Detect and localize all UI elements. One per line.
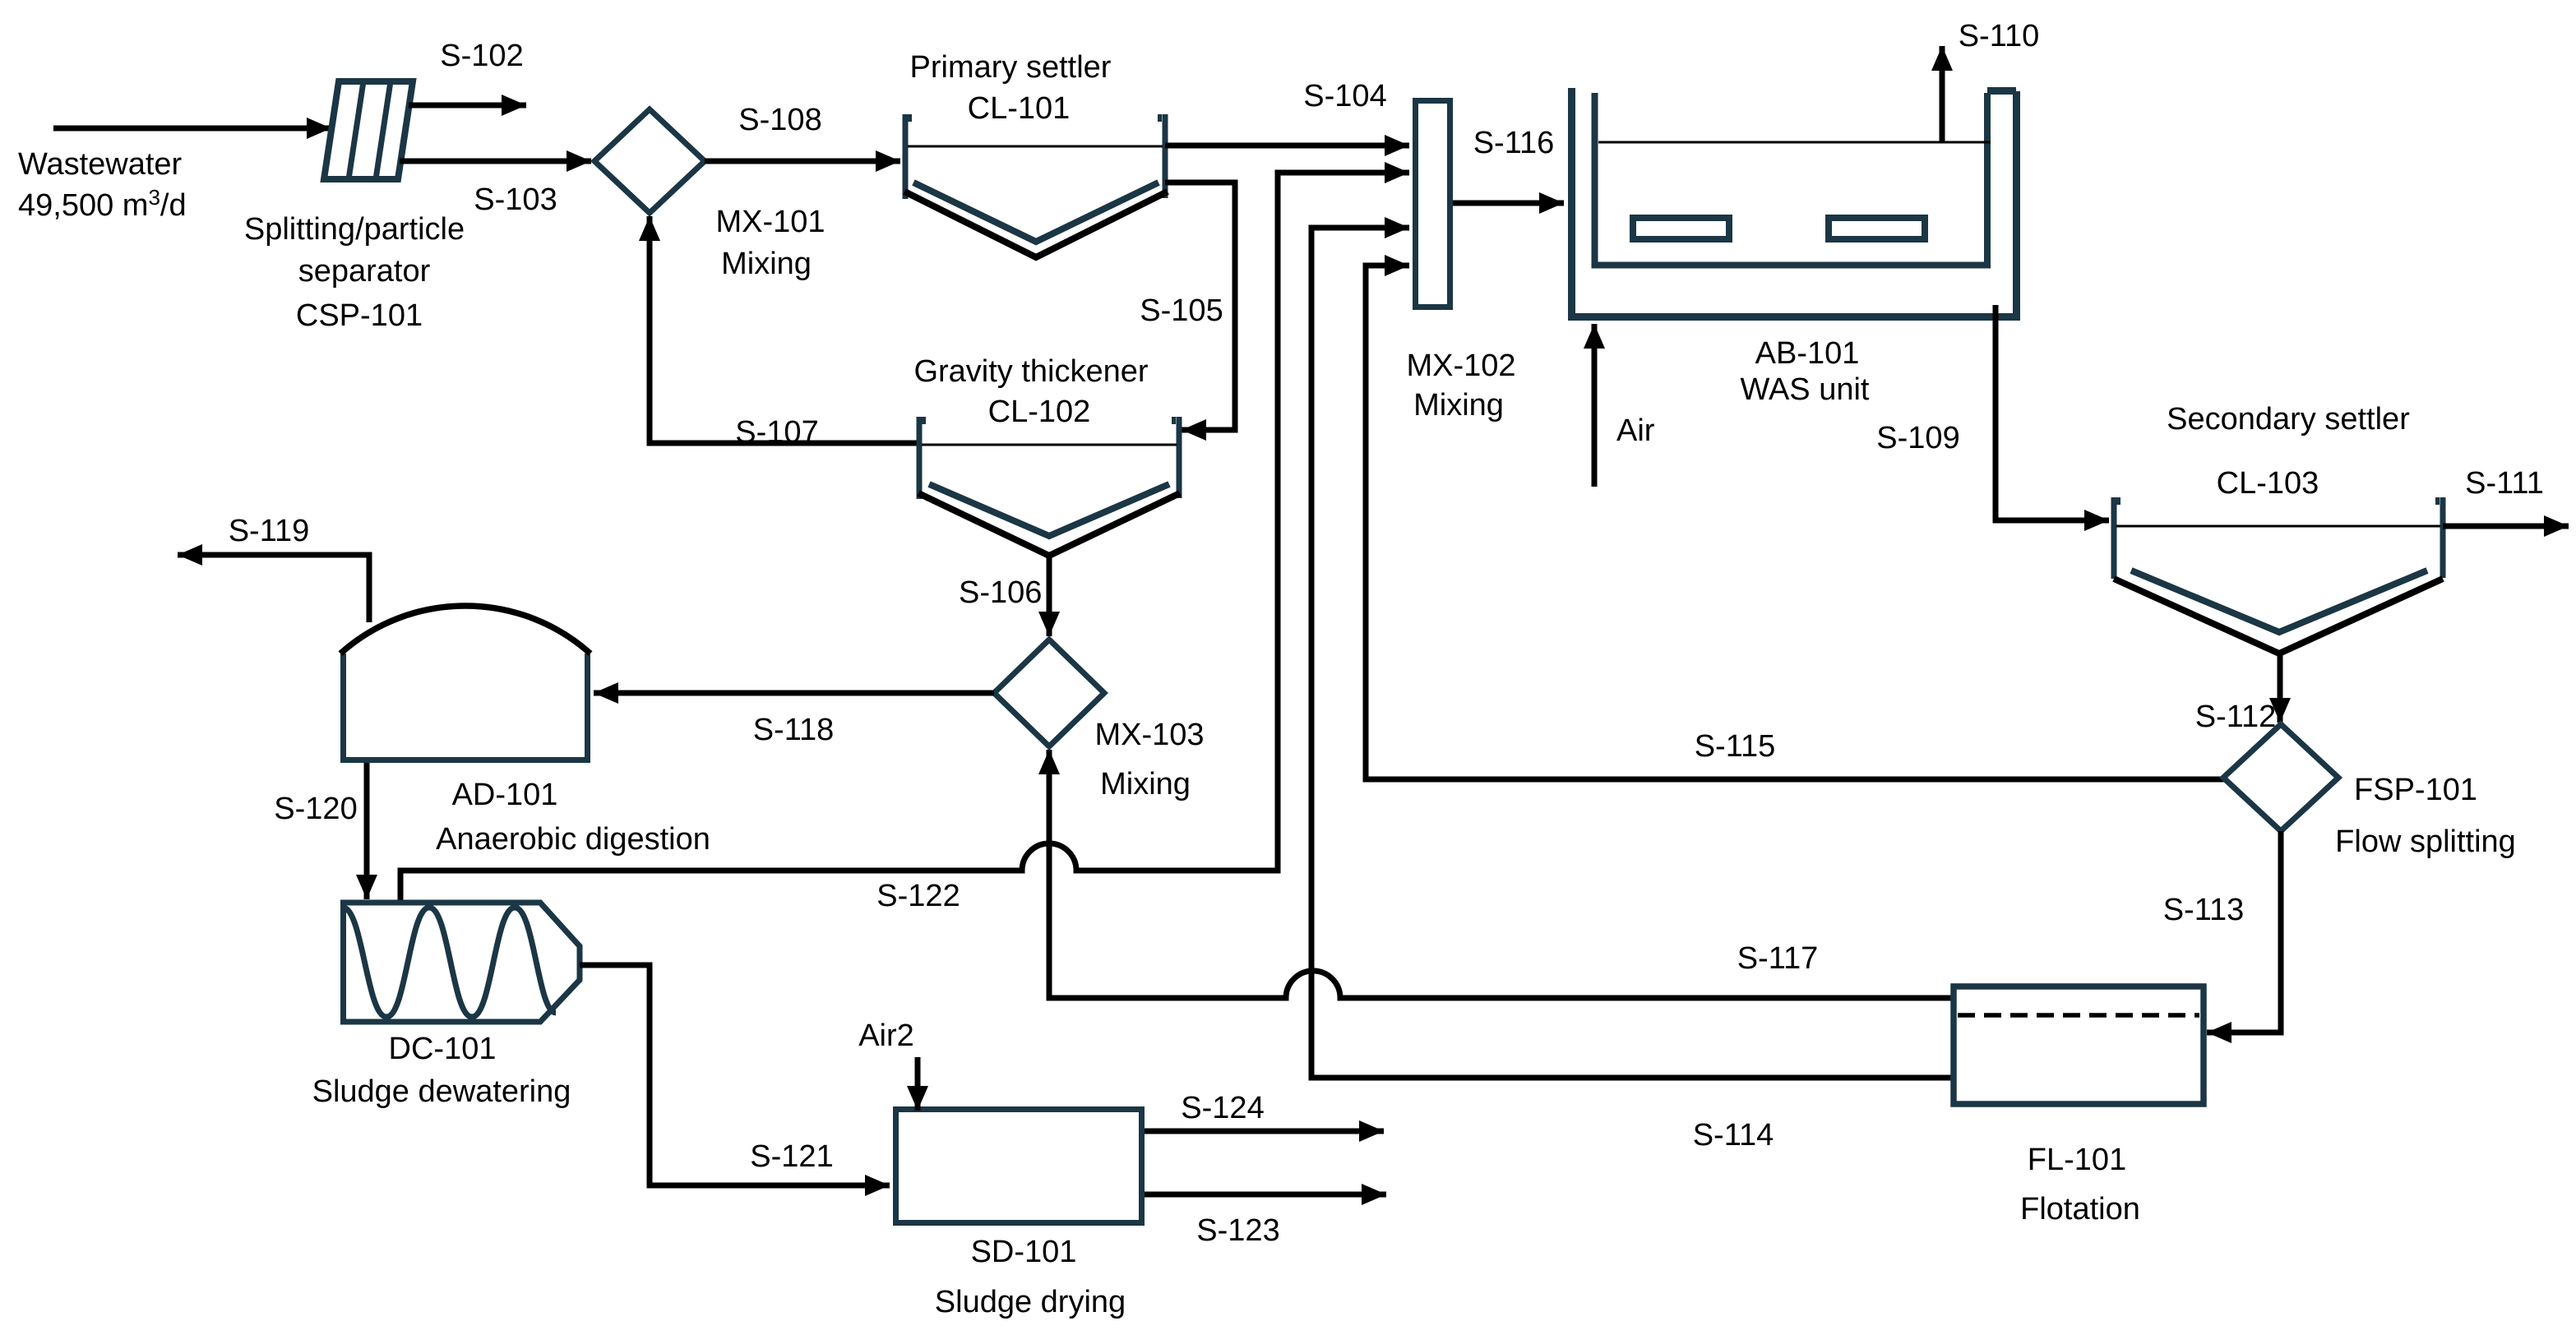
svg-text:FL-101: FL-101 bbox=[2028, 1143, 2126, 1177]
svg-text:S-122: S-122 bbox=[876, 879, 960, 913]
svg-text:Air2: Air2 bbox=[858, 1019, 914, 1053]
svg-text:SD-101: SD-101 bbox=[971, 1235, 1077, 1269]
svg-text:Mixing: Mixing bbox=[721, 247, 812, 281]
svg-text:S-104: S-104 bbox=[1303, 79, 1386, 113]
svg-text:S-116: S-116 bbox=[1473, 126, 1555, 160]
svg-text:Wastewater: Wastewater bbox=[18, 147, 183, 182]
svg-text:Air: Air bbox=[1616, 413, 1655, 448]
svg-text:S-106: S-106 bbox=[959, 575, 1042, 610]
svg-text:Sludge dewatering: Sludge dewatering bbox=[312, 1074, 571, 1109]
svg-text:S-109: S-109 bbox=[1876, 421, 1959, 455]
svg-text:S-114: S-114 bbox=[1693, 1118, 1774, 1153]
svg-text:S-121: S-121 bbox=[750, 1139, 833, 1174]
svg-text:DC-101: DC-101 bbox=[389, 1032, 497, 1066]
svg-text:S-102: S-102 bbox=[440, 39, 523, 73]
svg-text:S-103: S-103 bbox=[474, 182, 557, 217]
svg-text:separator: separator bbox=[298, 254, 431, 289]
svg-text:Sludge drying: Sludge drying bbox=[935, 1285, 1126, 1319]
svg-text:Gravity thickener: Gravity thickener bbox=[913, 354, 1148, 389]
svg-text:AB-101: AB-101 bbox=[1755, 336, 1860, 371]
svg-text:Anaerobic digestion: Anaerobic digestion bbox=[436, 822, 710, 857]
svg-text:FSP-101: FSP-101 bbox=[2354, 773, 2477, 807]
svg-text:WAS unit: WAS unit bbox=[1741, 372, 1870, 407]
svg-text:S-111: S-111 bbox=[2465, 466, 2544, 501]
svg-text:Mixing: Mixing bbox=[1413, 388, 1504, 423]
svg-text:CL-102: CL-102 bbox=[988, 395, 1091, 429]
svg-text:CL-101: CL-101 bbox=[968, 91, 1071, 126]
svg-text:Flow splitting: Flow splitting bbox=[2335, 825, 2516, 859]
svg-text:S-113: S-113 bbox=[2163, 893, 2245, 927]
svg-text:49,500 m3/d: 49,500 m3/d bbox=[18, 185, 187, 223]
svg-text:S-117: S-117 bbox=[1737, 941, 1819, 976]
svg-text:S-118: S-118 bbox=[753, 713, 835, 747]
svg-text:S-110: S-110 bbox=[1959, 19, 2040, 53]
svg-text:S-108: S-108 bbox=[738, 103, 821, 137]
svg-text:Mixing: Mixing bbox=[1100, 767, 1191, 801]
svg-text:Splitting/particle: Splitting/particle bbox=[244, 212, 465, 247]
svg-text:AD-101: AD-101 bbox=[452, 778, 558, 812]
svg-text:Flotation: Flotation bbox=[2020, 1192, 2140, 1226]
svg-text:S-107: S-107 bbox=[735, 415, 818, 450]
svg-text:Secondary settler: Secondary settler bbox=[2167, 402, 2410, 437]
svg-text:S-123: S-123 bbox=[1196, 1213, 1279, 1248]
svg-text:MX-102: MX-102 bbox=[1406, 349, 1515, 383]
svg-text:Primary settler: Primary settler bbox=[910, 50, 1112, 85]
svg-text:S-112: S-112 bbox=[2195, 700, 2277, 734]
svg-text:MX-103: MX-103 bbox=[1094, 718, 1204, 752]
svg-text:S-119: S-119 bbox=[229, 514, 310, 548]
svg-text:CSP-101: CSP-101 bbox=[296, 298, 423, 333]
svg-text:MX-101: MX-101 bbox=[715, 205, 825, 239]
svg-text:S-105: S-105 bbox=[1140, 293, 1223, 328]
svg-text:S-115: S-115 bbox=[1695, 729, 1776, 764]
svg-text:S-124: S-124 bbox=[1181, 1091, 1264, 1125]
svg-text:CL-103: CL-103 bbox=[2217, 466, 2319, 501]
svg-text:S-120: S-120 bbox=[274, 792, 357, 826]
